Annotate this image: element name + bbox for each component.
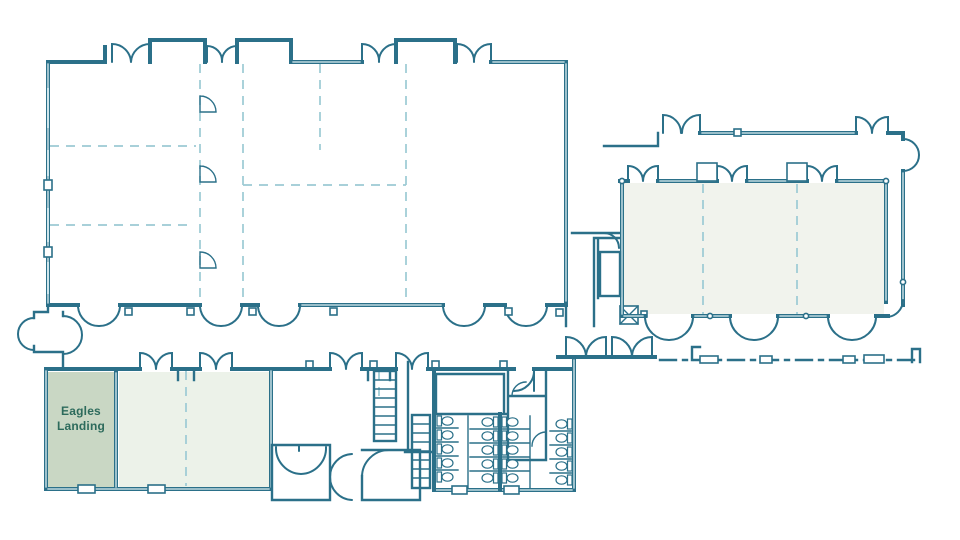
toilets (437, 416, 572, 485)
walkway-mark-2 (760, 356, 772, 363)
south-doors-between (330, 454, 352, 500)
connector-doors (566, 337, 652, 357)
floor-plan (0, 0, 960, 540)
east-wall-marker (734, 129, 741, 136)
walkway-mark-3 (843, 356, 855, 363)
west-vestibule-doors (18, 316, 82, 354)
connector-stair-door (604, 233, 619, 248)
wall-knob-1 (44, 180, 52, 190)
door-gap-3 (452, 486, 467, 494)
walkway-mark-4 (864, 355, 884, 363)
east-stair-box (600, 252, 620, 296)
east-column-2 (787, 163, 807, 181)
west-vestibule (18, 305, 82, 369)
connector-walls (566, 233, 622, 326)
door-gap-4 (504, 486, 519, 494)
walkway-mark-1 (700, 356, 718, 363)
partition-dashes (50, 64, 406, 302)
wall-knob-2 (44, 247, 52, 257)
east-column-1 (697, 163, 717, 181)
door-gap-1 (78, 485, 95, 493)
main-hall (44, 40, 566, 368)
room-south-2 (119, 372, 269, 487)
floor-plan-canvas: Eagles Landing (0, 0, 960, 540)
east-corridor-walls (604, 133, 658, 146)
room-label-eagles-landing: Eagles Landing (46, 404, 116, 434)
door-gap-2 (148, 485, 165, 493)
east-bottom-doors (645, 318, 876, 340)
south-vestibule-a (272, 445, 330, 500)
east-top-doors (628, 115, 919, 181)
vestibule-b-floor (364, 452, 418, 498)
main-hall-wall-cores (48, 62, 566, 305)
partition-pass-doors (200, 96, 216, 268)
corridor-columns (125, 308, 563, 368)
main-hall-south-doors (78, 307, 547, 326)
room-east-hall (624, 183, 884, 314)
west-vestibule-walls (34, 305, 63, 369)
janitor-floor (438, 376, 502, 412)
main-hall-top-doors (112, 44, 491, 62)
main-hall-exterior-walls (48, 40, 566, 305)
